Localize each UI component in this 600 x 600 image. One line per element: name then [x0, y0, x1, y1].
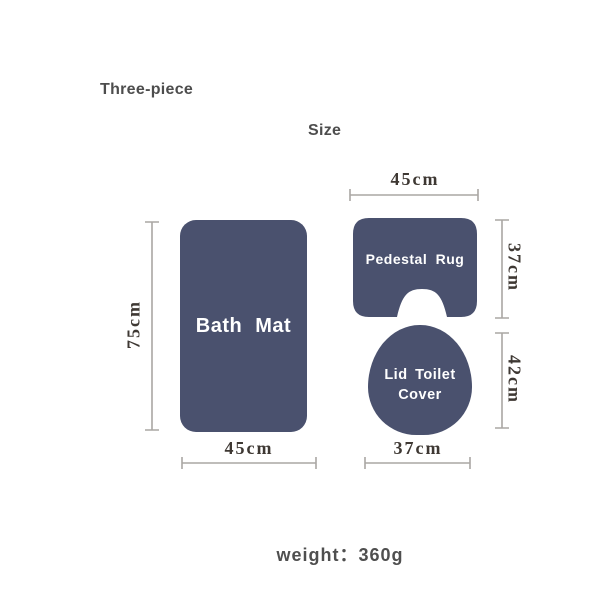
bath-mat-height-label: 75cm [124, 285, 145, 365]
weight-label: weight： [276, 545, 358, 565]
pedestal-rug-label: Pedestal Rug [353, 251, 477, 267]
bath-mat-width-label: 45cm [209, 438, 289, 459]
pedestal-rug-width-dimension-line [350, 189, 478, 201]
pedestal-rug-shape [353, 218, 477, 317]
pedestal-rug-height-label: 37cm [504, 228, 525, 308]
size-diagram: Three-piece Size Bath Mat Pedestal Rug L… [0, 0, 600, 600]
lid-toilet-cover-label-line2: Cover [398, 386, 442, 406]
pedestal-rug-width-label: 45cm [375, 169, 455, 190]
weight-value: 360g [358, 545, 403, 565]
lid-toilet-cover-height-label: 42cm [504, 340, 525, 420]
bath-mat-label: Bath Mat [196, 315, 291, 338]
bath-mat-height-dimension-line [145, 222, 159, 430]
lid-toilet-cover-label-line1: Lid Toilet [384, 366, 455, 386]
lid-toilet-cover-width-label: 37cm [378, 438, 458, 459]
weight-text: weight：360g [230, 541, 450, 567]
bath-mat-shape: Bath Mat [180, 220, 307, 432]
